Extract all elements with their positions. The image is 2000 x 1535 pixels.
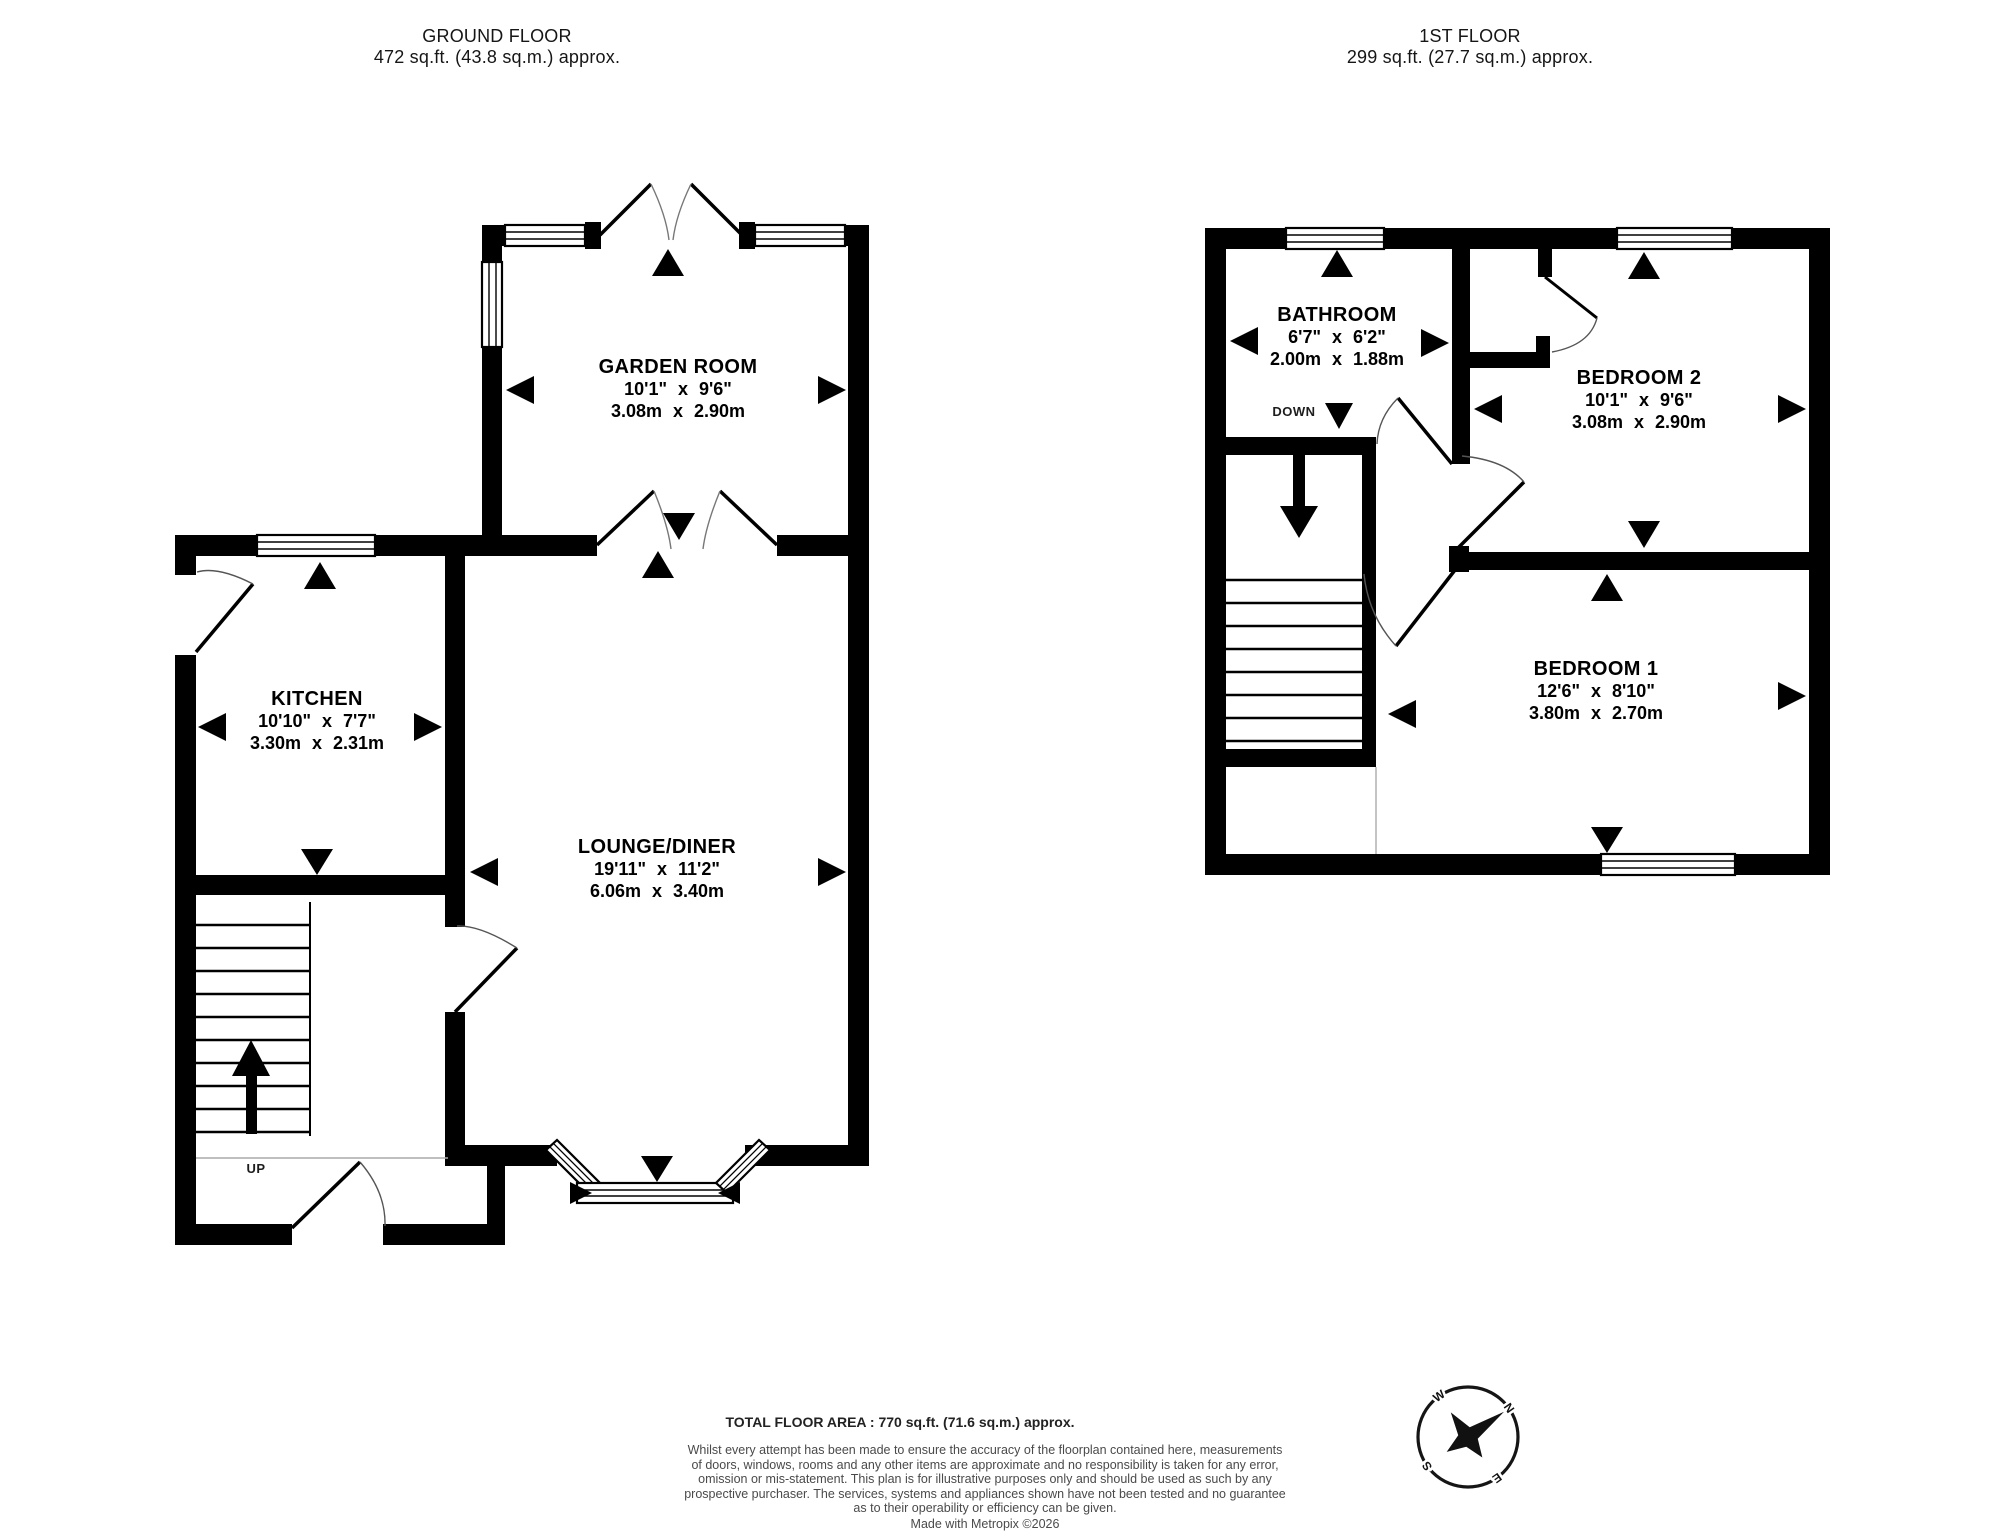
room-label-bathroom: BATHROOM 6'7" x 6'2" 2.00m x 1.88m <box>1270 304 1404 370</box>
cupboard-door <box>1545 277 1597 352</box>
room-label-bedroom-1: BEDROOM 1 12'6" x 8'10" 3.80m x 2.70m <box>1529 658 1663 724</box>
arrow-right-icon <box>414 713 442 741</box>
ground-floor-area: 472 sq.ft. (43.8 sq.m.) approx. <box>374 47 620 68</box>
arrow-left-icon <box>506 376 534 404</box>
room-label-bedroom-2: BEDROOM 2 10'1" x 9'6" 3.08m x 2.90m <box>1572 367 1706 433</box>
up-label: UP <box>246 1161 265 1176</box>
ground-floor-title: GROUND FLOOR <box>374 26 620 47</box>
room-dims-imperial: 19'11" x 11'2" <box>578 858 736 880</box>
arrow-up-icon <box>1591 574 1623 601</box>
bedroom1-window <box>1601 854 1735 875</box>
room-dims-metric: 3.08m x 2.90m <box>599 400 758 422</box>
arrow-left-icon <box>1388 700 1416 728</box>
metropix-credit: Made with Metropix ©2026 <box>684 1517 1286 1532</box>
room-label-kitchen: KITCHEN 10'10" x 7'7" 3.30m x 2.31m <box>250 688 384 754</box>
kitchen-window <box>257 535 375 556</box>
down-label: DOWN <box>1272 404 1315 419</box>
floorplan-canvas: N E S W <box>0 0 2000 1535</box>
arrow-up-icon <box>1628 252 1660 279</box>
disclaimer-line: omission or mis-statement. This plan is … <box>684 1472 1286 1487</box>
arrow-right-icon <box>1778 682 1806 710</box>
room-dims-metric: 6.06m x 3.40m <box>578 880 736 902</box>
room-dims-imperial: 10'1" x 9'6" <box>1572 389 1706 411</box>
room-name: LOUNGE/DINER <box>578 836 736 858</box>
arrow-left-icon <box>1230 327 1258 355</box>
room-name: KITCHEN <box>250 688 384 710</box>
room-dims-imperial: 10'1" x 9'6" <box>599 378 758 400</box>
arrow-left-icon <box>470 858 498 886</box>
first-floor-title: 1ST FLOOR <box>1347 26 1593 47</box>
room-label-lounge-diner: LOUNGE/DINER 19'11" x 11'2" 6.06m x 3.40… <box>578 836 736 902</box>
room-dims-imperial: 10'10" x 7'7" <box>250 710 384 732</box>
bathroom-door <box>1377 398 1452 464</box>
disclaimer-line: as to their operability or efficiency ca… <box>684 1501 1286 1516</box>
arrow-down-icon <box>641 1156 673 1182</box>
arrow-down-icon <box>1591 827 1623 853</box>
bathroom-window <box>1286 228 1384 249</box>
arrow-up-icon <box>1321 250 1353 277</box>
total-floor-area: TOTAL FLOOR AREA : 770 sq.ft. (71.6 sq.m… <box>725 1414 1074 1430</box>
garden-room-top-window-left <box>505 225 585 246</box>
room-name: BEDROOM 2 <box>1572 367 1706 389</box>
room-name: BEDROOM 1 <box>1529 658 1663 680</box>
first-floor-area: 299 sq.ft. (27.7 sq.m.) approx. <box>1347 47 1593 68</box>
room-dims-imperial: 12'6" x 8'10" <box>1529 680 1663 702</box>
disclaimer-line: prospective purchaser. The services, sys… <box>684 1487 1286 1502</box>
room-label-garden-room: GARDEN ROOM 10'1" x 9'6" 3.08m x 2.90m <box>599 356 758 422</box>
compass-rose: N E S W <box>1418 1387 1518 1487</box>
arrow-down-icon <box>1628 521 1660 548</box>
room-dims-metric: 3.30m x 2.31m <box>250 732 384 754</box>
disclaimer-line: of doors, windows, rooms and any other i… <box>684 1458 1286 1473</box>
arrow-right-icon <box>1421 329 1449 357</box>
first-stairs <box>1226 452 1376 854</box>
room-dims-imperial: 6'7" x 6'2" <box>1270 326 1404 348</box>
arrow-down-icon <box>663 513 695 540</box>
arrow-down-icon <box>301 849 333 875</box>
room-dims-metric: 2.00m x 1.88m <box>1270 348 1404 370</box>
disclaimer: Whilst every attempt has been made to en… <box>684 1443 1286 1531</box>
room-dims-metric: 3.80m x 2.70m <box>1529 702 1663 724</box>
bedroom2-door <box>1458 456 1524 548</box>
arrow-right-icon <box>818 858 846 886</box>
garden-room-french-doors <box>600 184 742 240</box>
bedroom1-door <box>1364 570 1455 646</box>
front-door <box>292 1162 385 1228</box>
garden-room-side-window <box>482 262 502 347</box>
disclaimer-line: Whilst every attempt has been made to en… <box>684 1443 1286 1458</box>
arrow-left-icon <box>1474 395 1502 423</box>
arrow-down-icon <box>1325 403 1353 429</box>
arrow-up-icon <box>642 551 674 578</box>
hall-lounge-door <box>455 926 517 1012</box>
arrow-right-icon <box>818 376 846 404</box>
room-dims-metric: 3.08m x 2.90m <box>1572 411 1706 433</box>
room-name: GARDEN ROOM <box>599 356 758 378</box>
floorplan-page: N E S W GROUND FLOOR 472 sq.ft. (43.8 sq… <box>0 0 2000 1535</box>
arrow-left-icon <box>198 713 226 741</box>
arrow-up-icon <box>304 562 336 589</box>
garden-room-top-window-right <box>755 225 845 246</box>
ground-floor-header: GROUND FLOOR 472 sq.ft. (43.8 sq.m.) app… <box>374 26 620 68</box>
first-floor-header: 1ST FLOOR 299 sq.ft. (27.7 sq.m.) approx… <box>1347 26 1593 68</box>
kitchen-door <box>196 571 253 653</box>
arrow-right-icon <box>1778 395 1806 423</box>
down-arrow <box>1280 452 1318 538</box>
room-name: BATHROOM <box>1270 304 1404 326</box>
bedroom2-window <box>1617 228 1732 249</box>
arrow-up-icon <box>652 249 684 276</box>
ground-stairs <box>196 902 448 1158</box>
